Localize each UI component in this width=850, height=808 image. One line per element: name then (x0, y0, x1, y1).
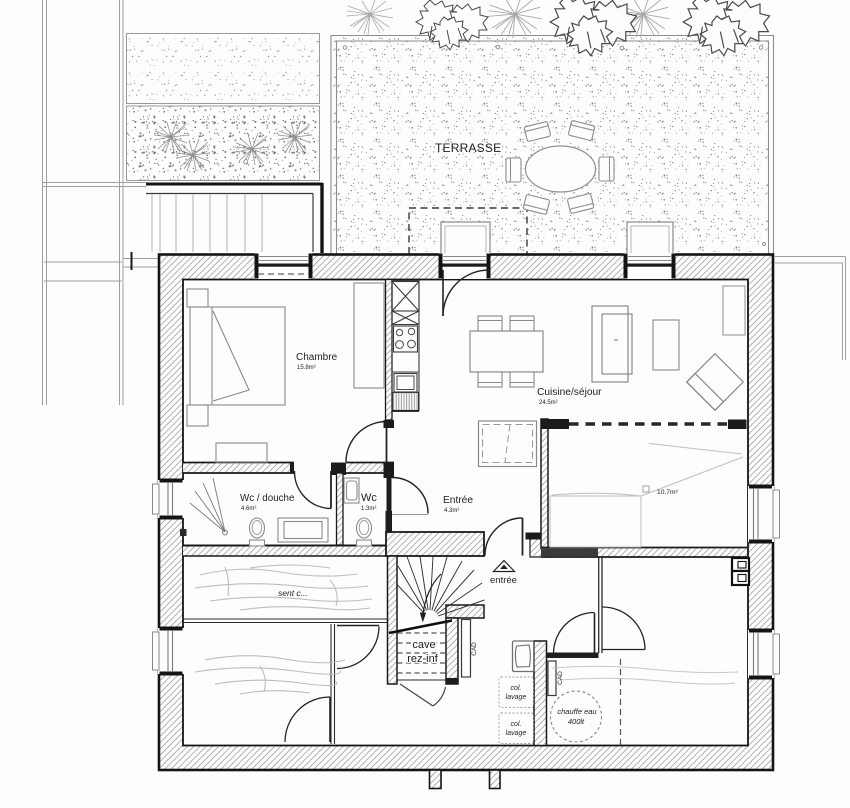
svg-text:4.6m²: 4.6m² (241, 506, 256, 512)
svg-text:cave: cave (412, 639, 435, 651)
svg-text:chauffe eau: chauffe eau (557, 707, 597, 716)
svg-text:15.8m²: 15.8m² (297, 365, 316, 371)
svg-text:sent c...: sent c... (278, 588, 308, 598)
svg-text:Wc: Wc (361, 492, 377, 504)
svg-text:lavage: lavage (506, 730, 527, 737)
svg-text:10.7m²: 10.7m² (657, 489, 679, 496)
svg-text:CAD: CAD (471, 642, 478, 656)
svg-text:Chambre: Chambre (296, 352, 338, 363)
svg-text:4.3m²: 4.3m² (444, 508, 459, 514)
svg-text:Wc / douche: Wc / douche (240, 493, 295, 504)
svg-text:rez-inf: rez-inf (407, 653, 439, 665)
svg-text:1.3m²: 1.3m² (361, 506, 376, 512)
svg-text:Cuisine/séjour: Cuisine/séjour (537, 387, 602, 398)
svg-text:24.5m²: 24.5m² (539, 400, 558, 406)
svg-text:CAD: CAD (557, 671, 564, 685)
svg-text:TERRASSE: TERRASSE (435, 141, 501, 155)
svg-text:lavage: lavage (506, 694, 527, 701)
svg-text:col.: col. (511, 721, 522, 728)
svg-text:entrée: entrée (490, 575, 517, 586)
svg-text:Entrée: Entrée (443, 495, 473, 506)
svg-text:400lt: 400lt (568, 717, 585, 726)
svg-text:col.: col. (511, 685, 522, 692)
